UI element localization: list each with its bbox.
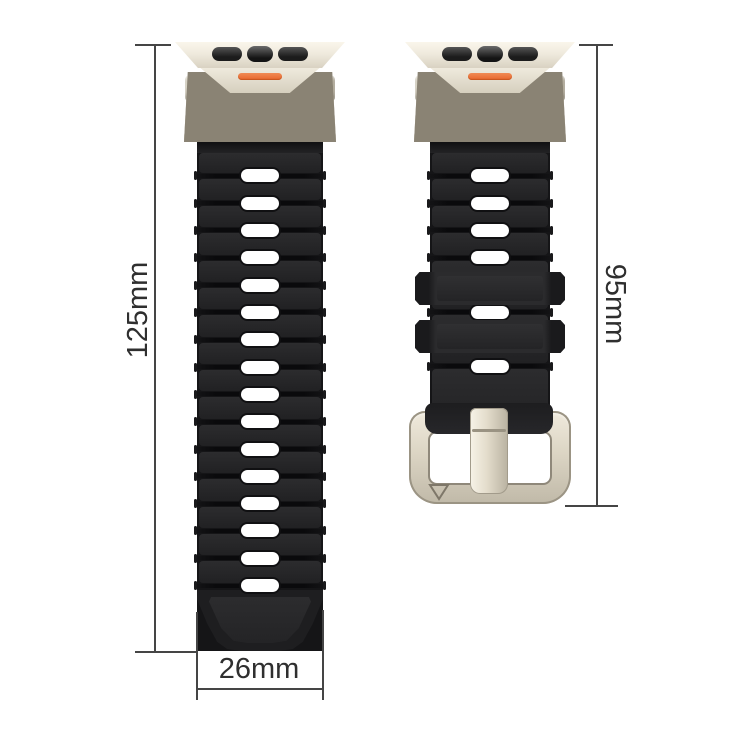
strap-hole (241, 251, 279, 264)
dimension-tick (565, 505, 618, 507)
strap-top-shadow (430, 141, 550, 153)
strap-hole (241, 197, 279, 210)
strap-hole (471, 251, 509, 264)
strap-hole (241, 579, 279, 592)
strap-hole (471, 224, 509, 237)
dimension-tick (135, 44, 171, 46)
long-strap-band (0, 0, 350, 710)
keeper-loop (415, 320, 565, 353)
strap-hole (241, 306, 279, 319)
strap-hole (241, 279, 279, 292)
dimension-label-strap-width: 26mm (199, 654, 319, 684)
strap-hole (241, 443, 279, 456)
silicone-strap-long (197, 141, 323, 651)
connector-slot (278, 47, 308, 61)
connector-slot (212, 47, 242, 61)
product-image: 125mm 95mm 26mm (0, 0, 750, 750)
connector-plate (175, 42, 345, 68)
connector-plate (405, 42, 575, 68)
dimension-line-short-strap (596, 45, 598, 507)
strap-hole (471, 360, 509, 373)
strap-hole (241, 388, 279, 401)
strap-hole (241, 333, 279, 346)
connector-slot (442, 47, 472, 61)
dimension-label-short-strap: 95mm (600, 254, 630, 354)
orange-accent-bar (238, 73, 282, 80)
dimension-label-long-strap: 125mm (123, 250, 153, 370)
triangle-engraving-icon (428, 483, 450, 501)
dimension-line-long-strap (154, 45, 156, 652)
strap-hole (241, 415, 279, 428)
tang-groove (472, 429, 506, 432)
strap-hole (241, 224, 279, 237)
dimension-tick (579, 44, 613, 46)
strap-hole (241, 169, 279, 182)
strap-hole (241, 524, 279, 537)
buckle-tang (470, 408, 508, 494)
strap-hole (241, 552, 279, 565)
strap-hole (471, 197, 509, 210)
strap-hole (241, 361, 279, 374)
strap-hole (471, 169, 509, 182)
strap-top-shadow (197, 141, 323, 153)
dimension-extension-line (322, 610, 324, 700)
dimension-tick (135, 651, 198, 653)
connector-slot (477, 46, 503, 62)
strap-hole (471, 306, 509, 319)
dimension-extension-line (196, 612, 198, 700)
keeper-loop (415, 272, 565, 305)
connector-slot (508, 47, 538, 61)
connector-slot (247, 46, 273, 62)
strap-hole (241, 497, 279, 510)
strap-hole (241, 470, 279, 483)
orange-accent-bar (468, 73, 512, 80)
dimension-line-strap-width (197, 688, 323, 690)
